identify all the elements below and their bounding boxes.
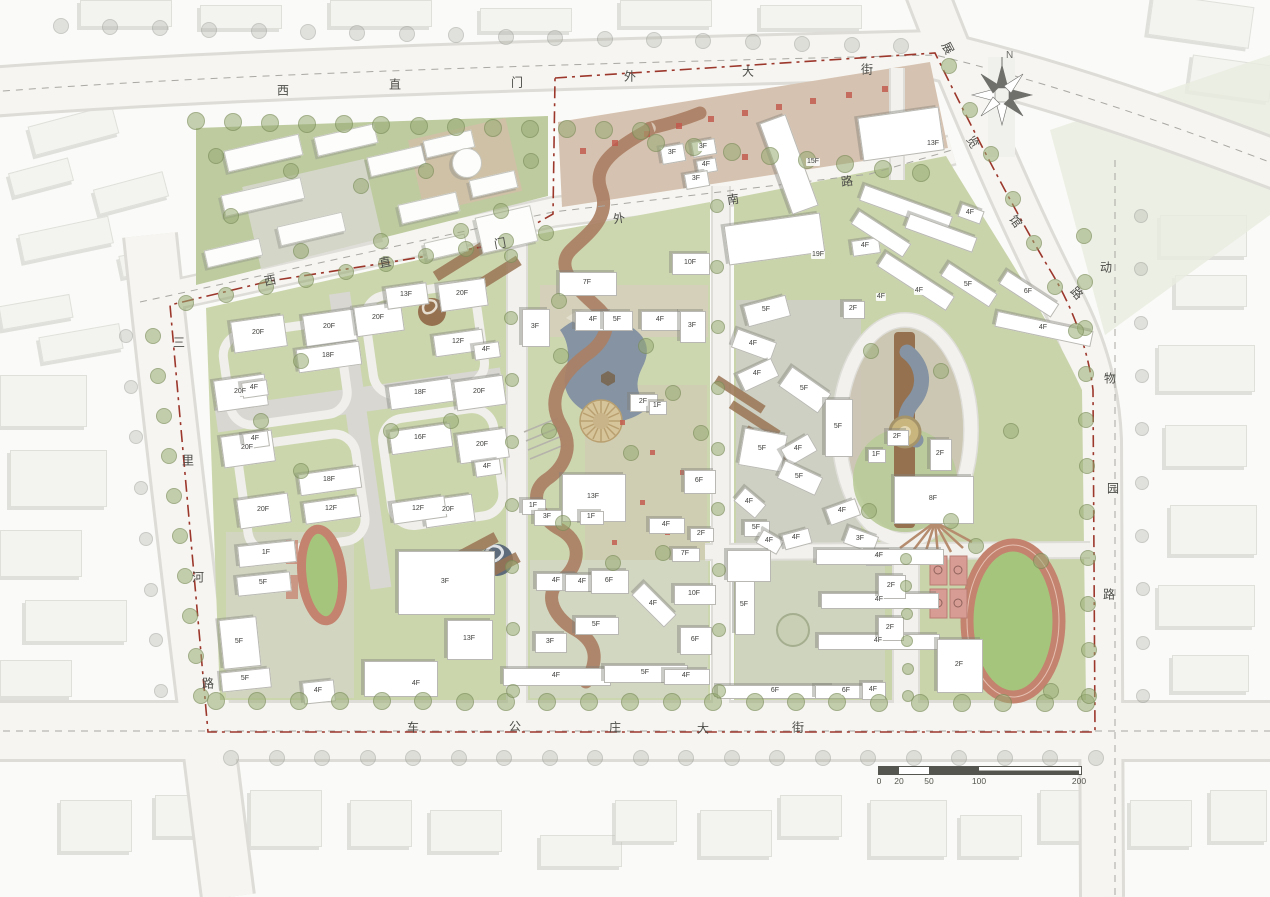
tree-icon [300,24,316,40]
street-name-char-xizhimenwai-dajie: 门 [511,74,523,91]
building-floor-label: 1F [261,549,271,557]
tree-icon [906,750,922,766]
tree-icon [447,118,465,136]
building-floor-label: 5F [240,675,250,683]
tree-icon [1135,476,1149,490]
tree-icon [338,264,354,280]
building-floor-label: 4F [868,686,878,694]
tree-icon [505,498,519,512]
tree-icon [506,684,520,698]
building-floor-label: 5F [833,423,843,431]
tree-icon [1003,423,1019,439]
tree-icon [646,32,662,48]
street-name-char-sanlihe-lu: 三 [173,334,185,351]
building-floor-label: 8F [928,495,938,503]
tree-icon [1078,366,1094,382]
tree-icon [844,37,860,53]
street-name-char-chegongzhuang-dajie: 庄 [609,719,621,736]
tree-icon [724,750,740,766]
building-floor-label: 20F [240,444,254,452]
tree-icon [902,663,914,675]
tree-icon [712,684,726,698]
tree-icon [405,750,421,766]
tree-icon [1135,369,1149,383]
tree-icon [506,622,520,636]
tree-icon [902,690,914,702]
tree-icon [283,163,299,179]
building-floor-label: 20F [251,329,265,337]
tree-icon [154,684,168,698]
building-floor-label: 12F [411,505,425,513]
tree-icon [1080,596,1096,612]
building-floor-label: 5F [739,601,749,609]
building-floor-label: 4F [1038,324,1048,332]
tree-icon [177,568,193,584]
building-floor-label: 4F [874,596,884,604]
tree-icon [632,122,650,140]
tree-icon [555,515,571,531]
building-floor-label: 20F [322,323,336,331]
street-name-char-xizhimenwai-dajie: 大 [742,63,754,80]
tree-icon [521,120,539,138]
tree-icon [633,750,649,766]
building-floor-label: 4F [249,384,259,392]
street-name-char-dongwuyuan-lu: 物 [1104,370,1116,387]
scale-bar-ticks: 02050100200 [878,775,1082,787]
building-floor-label: 4F [411,680,421,688]
tree-icon [1005,191,1021,207]
building-floor-label: 19F [811,251,825,259]
existing-round-building [452,148,482,178]
tree-icon [484,119,502,137]
tree-icon [1134,209,1148,223]
building-floor-label: 18F [322,476,336,484]
building-floor-label: 4F [837,507,847,515]
building-floor-label: 2F [885,624,895,632]
scale-bar-segments [878,766,1082,775]
tree-icon [551,293,567,309]
tree-icon [538,225,554,241]
tree-icon [655,545,671,561]
building-floor-label: 3F [667,149,677,157]
building-floor-label: 1F [871,451,881,459]
tree-icon [298,115,316,133]
tree-icon [451,750,467,766]
tree-icon [493,203,509,219]
building-floor-label: 2F [696,530,706,538]
building-floor-label: 6F [841,687,851,695]
tree-icon [1081,642,1097,658]
tree-icon [1136,636,1150,650]
tree-icon [711,381,725,395]
tree-icon [187,112,205,130]
tree-icon [269,750,285,766]
tree-icon [900,553,912,565]
tree-icon [373,692,391,710]
tree-icon [124,380,138,394]
building-floor-label: 2F [892,433,902,441]
building-floor-label: 6F [690,636,700,644]
tree-icon [144,583,158,597]
building-floor-label: 7F [582,279,592,287]
building-floor-label: 6F [694,477,704,485]
tree-icon [663,693,681,711]
building-floor-label: 5F [751,524,761,532]
street-name-char-xizhimenwai-nanlu: 外 [612,209,627,228]
tree-icon [1047,279,1063,295]
tree-icon [994,694,1012,712]
building-floor-label: 20F [472,388,486,396]
tree-icon [638,338,654,354]
tree-icon [293,353,309,369]
building-floor-label: 5F [258,579,268,587]
tree-icon [1136,689,1150,703]
building-floor-label: 4F [914,287,924,295]
building-floor-label: 4F [965,209,975,217]
tree-icon [711,320,725,334]
street-name-char-chegongzhuang-dajie: 车 [407,719,419,736]
building-floor-label: 4F [681,672,691,680]
building-floor-label: 4F [752,370,762,378]
tree-icon [746,693,764,711]
building-floor-label: 2F [638,398,648,406]
tree-icon [901,608,913,620]
building-footprint [727,550,771,582]
tree-icon [553,348,569,364]
tree-icon [943,513,959,529]
building-floor-label: 4F [577,578,587,586]
building-floor-label: 2F [935,450,945,458]
tree-icon [207,692,225,710]
building-floor-label: 20F [233,388,247,396]
building-floor-label: 6F [604,577,614,585]
building-floor-label: 3F [698,143,708,151]
tree-icon [580,693,598,711]
street-name-char-sanlihe-lu: 河 [192,569,204,586]
tree-icon [224,113,242,131]
building-floor-label: 5F [591,621,601,629]
tree-icon [1136,582,1150,596]
tree-icon [399,26,415,42]
building-floor-label: 13F [926,140,940,148]
street-name-char-xizhimenwai-dajie: 街 [861,61,873,78]
tree-icon [665,385,681,401]
tree-icon [418,163,434,179]
tree-icon [293,243,309,259]
tree-icon [523,153,539,169]
tree-icon [456,693,474,711]
tree-icon [290,692,308,710]
tree-icon [1026,235,1042,251]
site-plan-map: N 02050100200 西直门外大街车公庄大街三里河路动物园路展览馆路西直门… [0,0,1270,897]
building-floor-label: 13F [586,493,600,501]
tree-icon [188,648,204,664]
tree-icon [623,445,639,461]
tree-icon [933,363,949,379]
building-floor-label: 4F [655,316,665,324]
building-floor-label: 1F [652,402,662,410]
building-floor-label: 5F [799,385,809,393]
tree-icon [710,260,724,274]
tree-icon [139,532,153,546]
street-name-char-chegongzhuang-dajie: 大 [697,720,709,737]
tree-icon [605,555,621,571]
building-floor-label: 4F [661,521,671,529]
building-floor-label: 6F [1023,288,1033,296]
scale-tick: 0 [877,776,882,786]
tree-icon [870,694,888,712]
tree-icon [410,117,428,135]
street-name-char-xizhimenwai-dajie: 西 [277,82,289,99]
tree-icon [1079,504,1095,520]
tree-icon [1076,228,1092,244]
street-name-char-xizhimenwai-dajie: 直 [389,76,401,93]
building-floor-label: 3F [855,535,865,543]
building-floor-label: 13F [462,635,476,643]
building-floor-label: 20F [371,314,385,322]
building-floor-label: 4F [551,577,561,585]
tree-icon [1043,683,1059,699]
tree-icon [1078,412,1094,428]
building-floor-label: 20F [441,506,455,514]
tree-icon [161,448,177,464]
building-floor-label: 18F [321,352,335,360]
tree-icon [1081,688,1097,704]
tree-icon [647,134,665,152]
tree-icon [353,178,369,194]
building-floor-label: 10F [687,590,701,598]
tree-icon [712,563,726,577]
tree-icon [953,694,971,712]
street-name-char-xizhimenwai-nanlu: 路 [840,172,854,191]
tree-icon [541,423,557,439]
tree-icon [251,23,267,39]
scale-tick: 100 [972,776,986,786]
street-name-char-dongwuyuan-lu: 动 [1100,259,1112,276]
building-floor-label: 20F [455,290,469,298]
tree-icon [1068,323,1084,339]
tree-icon [542,750,558,766]
tree-icon [145,328,161,344]
tree-icon [893,38,909,54]
street-name-char-dongwuyuan-lu: 路 [1103,586,1115,603]
building-floor-label: 4F [791,534,801,542]
building-floor-label: 7F [680,550,690,558]
building-floor-label: 6F [770,687,780,695]
building-floor-label: 4F [876,293,886,301]
street-name-char-xizhimenwai-dajie: 外 [624,68,636,85]
building-floor-label: 4F [874,552,884,560]
tree-icon [815,750,831,766]
tree-icon [863,343,879,359]
building-floor-label: 4F [250,435,260,443]
tree-icon [861,503,877,519]
tree-icon [172,528,188,544]
tree-icon [373,233,389,249]
building-floor-label: 3F [542,513,552,521]
sun-plaza [580,400,622,442]
tree-icon [201,22,217,38]
street-name-char-dongwuyuan-lu: 园 [1107,480,1119,497]
tree-icon [223,208,239,224]
building-footprint [364,661,438,697]
tree-icon [941,58,957,74]
building-floor-label: 20F [256,506,270,514]
building-floor-label: 4F [313,687,323,695]
building-floor-label: 4F [764,537,774,545]
building-floor-label: 16F [413,434,427,442]
tree-icon [119,329,133,343]
building-floor-label: 5F [794,473,804,481]
scale-tick: 20 [894,776,903,786]
tree-icon [710,199,724,213]
tree-icon [208,148,224,164]
tree-icon [595,121,613,139]
tree-icon [298,272,314,288]
building-floor-label: 4F [701,161,711,169]
tree-icon [912,164,930,182]
tree-icon [597,31,613,47]
building-floor-label: 12F [324,505,338,513]
building-floor-label: 3F [530,323,540,331]
tree-icon [443,413,459,429]
tree-icon [314,750,330,766]
building-floor-label: 3F [687,322,697,330]
street-name-char-xizhimenwai-nanlu: 南 [726,190,740,209]
tree-icon [383,423,399,439]
building-floor-label: 4F [551,672,561,680]
building-floor-label: 20F [475,441,489,449]
street-name-char-sanlihe-lu: 里 [182,452,194,469]
building-floor-label: 4F [588,316,598,324]
building-floor-label: 3F [691,175,701,183]
tree-icon [1088,750,1104,766]
tree-icon [1080,550,1096,566]
building-floor-label: 5F [757,445,767,453]
tree-icon [505,373,519,387]
street-name-char-sanlihe-lu: 路 [202,675,214,692]
building-floor-label: 4F [860,242,870,250]
tree-icon [997,750,1013,766]
building-floor-label: 4F [744,498,754,506]
tree-icon [794,36,810,52]
building-floor-label: 5F [234,638,244,646]
building-floor-label: 1F [528,502,538,510]
building-floor-label: 10F [683,259,697,267]
tree-icon [178,295,194,311]
building-floor-label: 2F [886,582,896,590]
scale-tick: 200 [1072,776,1086,786]
street-name-char-chegongzhuang-dajie: 街 [792,719,804,736]
building-floor-label: 13F [399,291,413,299]
building-floor-label: 4F [748,340,758,348]
tree-icon [968,538,984,554]
tree-icon [874,160,892,178]
tree-icon [156,408,172,424]
building-floor-label: 4F [482,463,492,471]
tree-icon [504,249,518,263]
building-floor-label: 2F [954,661,964,669]
building-floor-label: 5F [640,669,650,677]
building-floor-label: 12F [451,338,465,346]
tree-icon [1033,553,1049,569]
building-floor-label: 5F [612,316,622,324]
street-name-char-chegongzhuang-dajie: 公 [509,718,521,735]
building-floor-label: 15F [806,158,820,166]
building-floor-label: 2F [848,305,858,313]
tree-icon [253,413,269,429]
tree-icon [53,18,69,34]
building-floor-label: 3F [545,638,555,646]
scale-tick: 50 [924,776,933,786]
building-floor-label: 4F [873,637,883,645]
tree-icon [711,442,725,456]
tree-icon [547,30,563,46]
building-floor-label: 5F [963,281,973,289]
tree-icon [723,143,741,161]
tree-icon [693,425,709,441]
tree-icon [453,223,469,239]
building-floor-label: 18F [413,389,427,397]
building-floor-label: 4F [648,600,658,608]
building-floor-label: 1F [586,513,596,521]
tree-icon [458,241,474,257]
tree-icon [360,750,376,766]
building-floor-label: 4F [793,445,803,453]
building-floor-label: 4F [481,346,491,354]
building-floor-label: 3F [440,578,450,586]
tree-icon [761,147,779,165]
tree-icon [1079,458,1095,474]
tree-icon [223,750,239,766]
tree-icon [293,463,309,479]
tree-icon [498,29,514,45]
scale-bar: 02050100200 [878,766,1082,787]
north-label: N [1006,50,1013,61]
tree-icon [261,114,279,132]
building-floor-label: 5F [761,306,771,314]
